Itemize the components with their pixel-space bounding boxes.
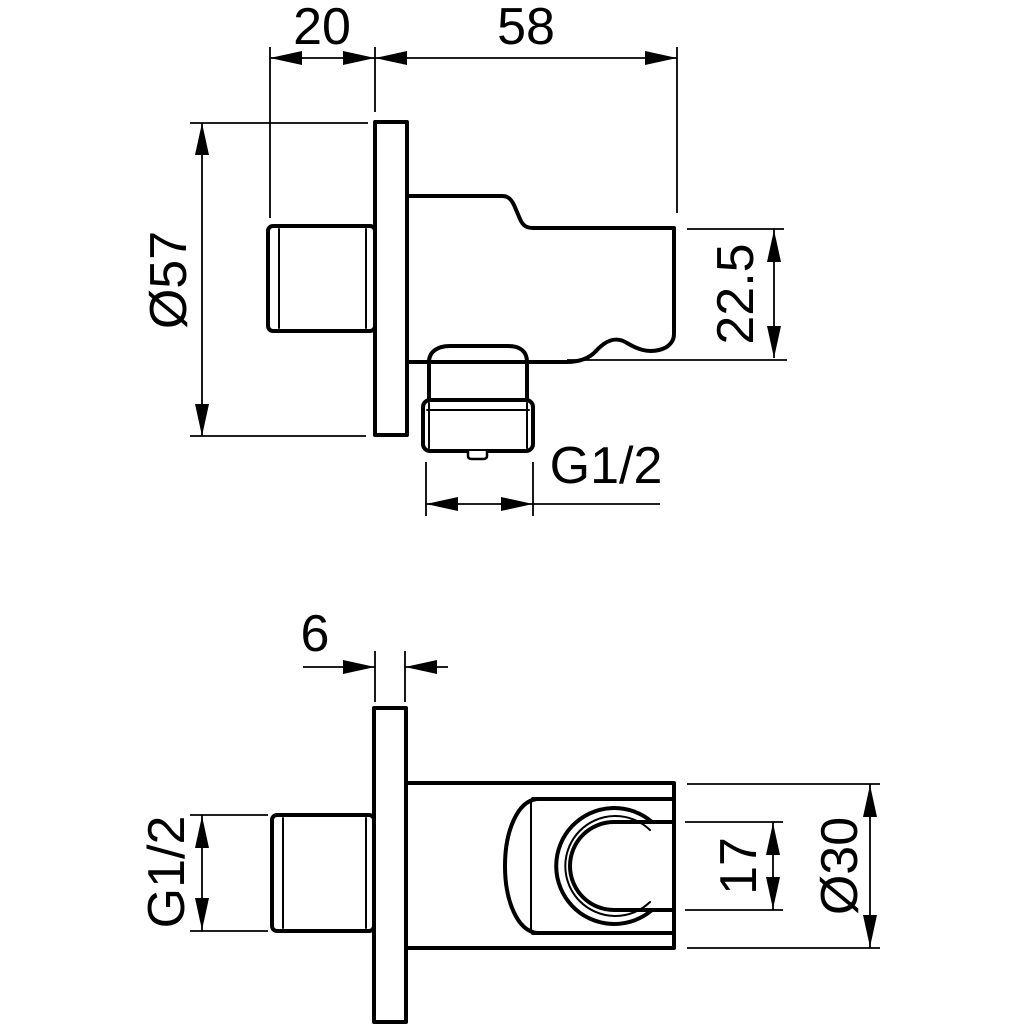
dim-body-depth-label: 58 (497, 0, 555, 56)
dim-thread-to-plate-lines (270, 47, 375, 218)
dim-plate-thickness-arrows (343, 660, 437, 674)
wall-plate-outline (375, 122, 407, 435)
dim-body-depth-lines (375, 47, 677, 213)
dim-inlet-thread-label: G1/2 (138, 816, 196, 929)
inlet-connector-outline-plan (272, 815, 374, 931)
coupling-nut-outline (423, 400, 533, 451)
wall-plate-outline-plan (374, 708, 406, 1022)
body-profile-outline (407, 196, 674, 362)
dim-thread-to-plate-label: 20 (293, 0, 351, 56)
outlet-neck-lines (429, 362, 527, 400)
dim-outlet-thread-label: G1/2 (550, 437, 663, 495)
body-outline-plan (406, 783, 674, 948)
drawing-canvas: 20 58 Ø57 22.5 G1/2 (0, 0, 1024, 1024)
plan-view: 6 G1/2 17 Ø30 (138, 605, 880, 1022)
inlet-connector-outline (268, 226, 375, 331)
dim-holder-diameter-label: Ø30 (811, 817, 869, 915)
dim-outlet-height-label: 22.5 (707, 243, 765, 344)
coupling-nut-tab (468, 451, 487, 459)
dim-plate-thickness-label: 6 (301, 605, 330, 663)
dim-cradle-gap-label: 17 (710, 837, 768, 895)
dim-plate-diameter-label: Ø57 (140, 231, 198, 329)
side-elevation-view: 20 58 Ø57 22.5 G1/2 (140, 0, 787, 516)
technical-drawing-svg: 20 58 Ø57 22.5 G1/2 (0, 0, 1024, 1024)
